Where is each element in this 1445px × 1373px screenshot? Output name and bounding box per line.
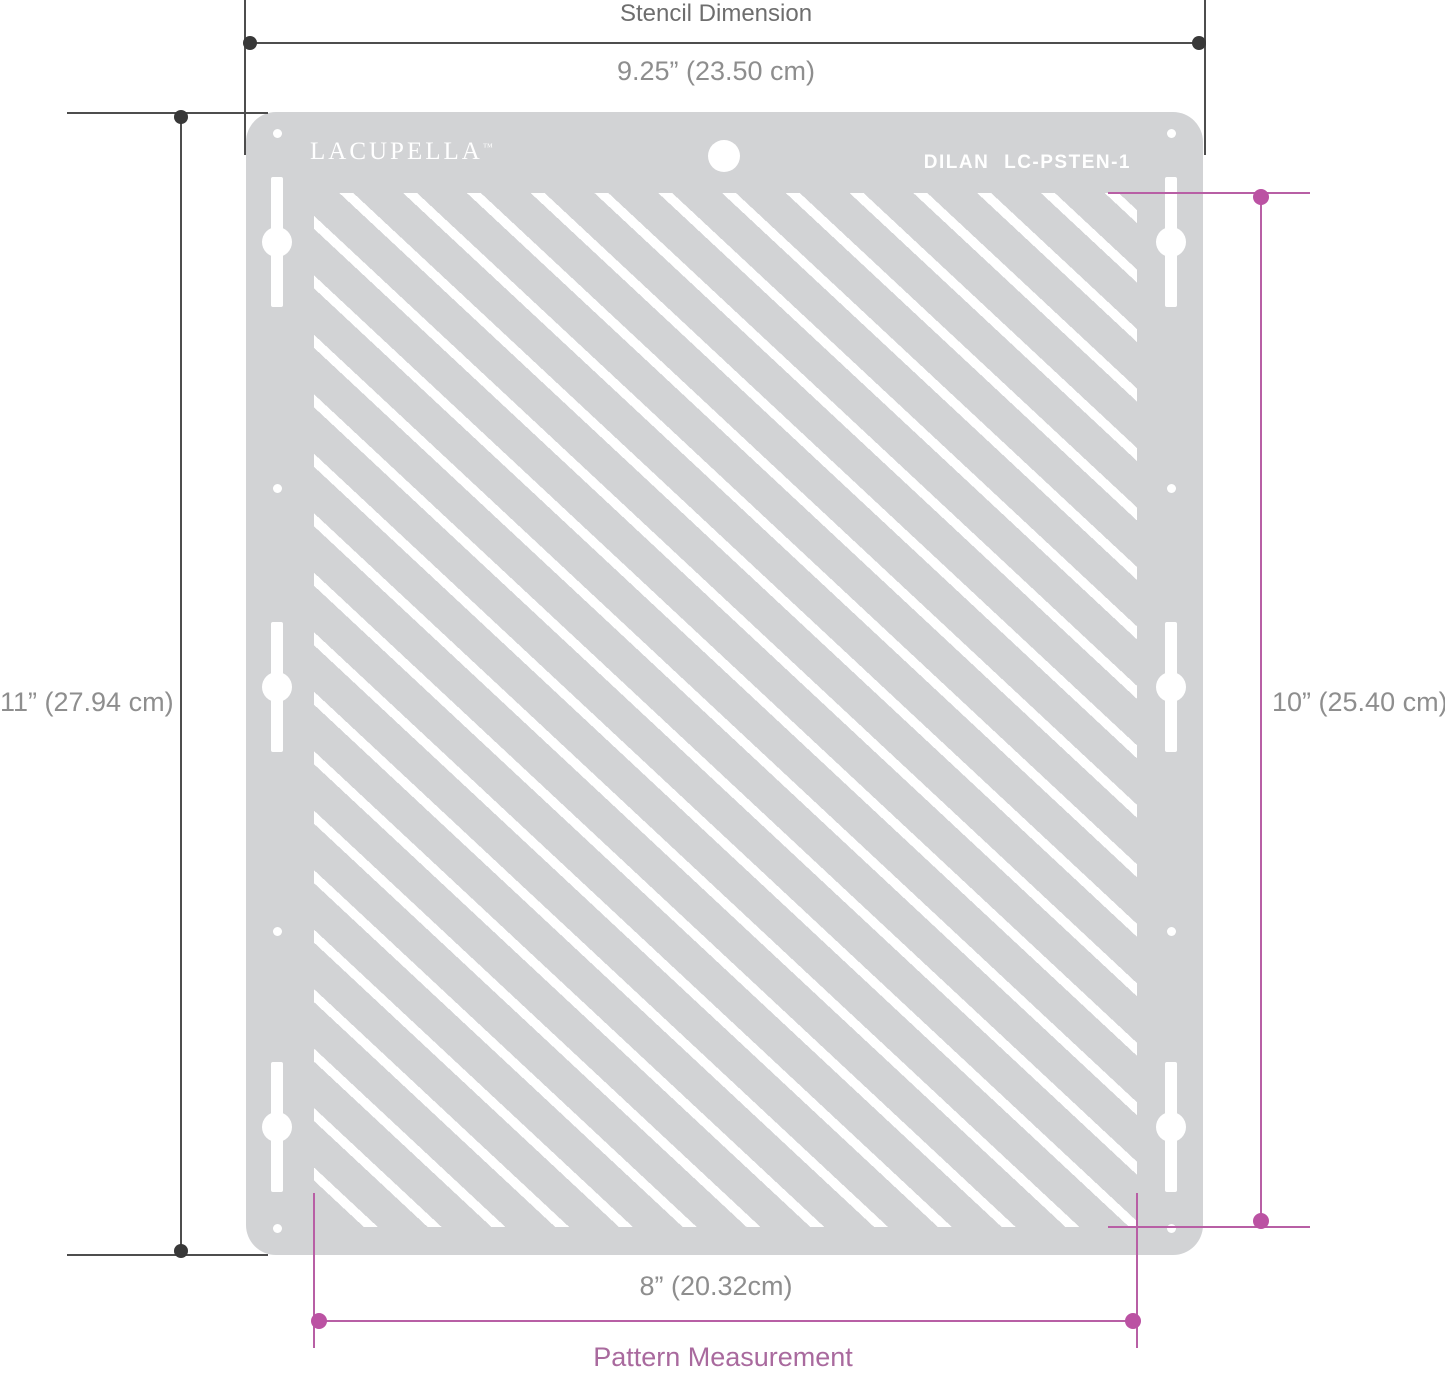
- stencil-dimension-title: Stencil Dimension: [466, 0, 966, 28]
- brand-name: LACUPELLA: [310, 138, 483, 165]
- left-dimension-line: [180, 117, 182, 1251]
- pattern-extension-line-right-bottom: [1108, 1226, 1310, 1228]
- pin-hole: [273, 927, 282, 936]
- pin-hole: [273, 129, 282, 138]
- stencil-dimension-diagram: LACUPELLA™ DILAN LC-PSTEN-1: [0, 0, 1445, 1373]
- registration-slot-circle: [262, 1112, 292, 1142]
- stencil-width-value: 9.25” (23.50 cm): [466, 56, 966, 87]
- dimension-endpoint-dot: [174, 1244, 188, 1258]
- dimension-endpoint-dot: [1192, 36, 1206, 50]
- pattern-endpoint-dot: [1125, 1313, 1141, 1329]
- dimension-endpoint-dot: [174, 110, 188, 124]
- stencil-height-value: 11” (27.94 cm): [0, 687, 170, 718]
- pattern-width-value: 8” (20.32cm): [466, 1271, 966, 1302]
- registration-slot-circle: [1156, 227, 1186, 257]
- trademark-symbol: ™: [483, 142, 493, 153]
- diagonal-stripe-pattern: [314, 193, 1137, 1227]
- pattern-endpoint-dot: [311, 1313, 327, 1329]
- top-dimension-line: [250, 42, 1199, 44]
- pin-hole: [1167, 129, 1176, 138]
- extension-line-left-bottom: [67, 1254, 268, 1256]
- model-number: DILAN LC-PSTEN-1: [924, 152, 1131, 174]
- registration-slot-circle: [1156, 672, 1186, 702]
- bottom-dimension-line: [319, 1320, 1133, 1322]
- pattern-extension-line-right-top: [1108, 192, 1310, 194]
- registration-slot-circle: [262, 672, 292, 702]
- pin-hole: [273, 1224, 282, 1233]
- extension-line-left-top: [67, 112, 268, 114]
- brand-logo: LACUPELLA™: [310, 138, 493, 166]
- pattern-endpoint-dot: [1253, 1213, 1269, 1229]
- pattern-height-value: 10” (25.40 cm): [1272, 687, 1445, 718]
- pin-hole: [1167, 484, 1176, 493]
- extension-line-top-left: [244, 0, 246, 155]
- dimension-endpoint-dot: [243, 36, 257, 50]
- hanging-hole: [708, 140, 740, 172]
- pin-hole: [1167, 927, 1176, 936]
- registration-slot-circle: [1156, 1112, 1186, 1142]
- registration-slot-circle: [262, 227, 292, 257]
- right-dimension-line: [1260, 197, 1262, 1221]
- stencil-sheet: LACUPELLA™ DILAN LC-PSTEN-1: [246, 112, 1203, 1255]
- pattern-measurement-title: Pattern Measurement: [473, 1342, 973, 1373]
- pattern-endpoint-dot: [1253, 189, 1269, 205]
- extension-line-top-right: [1204, 0, 1206, 155]
- pin-hole: [273, 484, 282, 493]
